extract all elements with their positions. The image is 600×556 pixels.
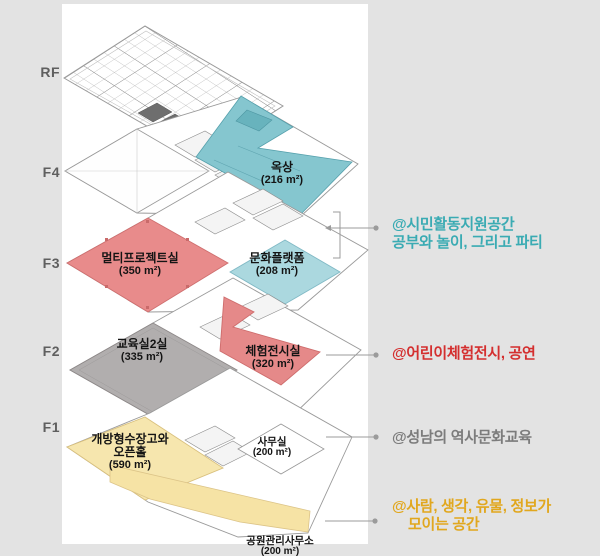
room-name: 멀티프로젝트실 [101,252,178,265]
annotation-citizen-support-space: @시민활동지원공간 공부와 놀이, 그리고 파티 [392,216,542,251]
room-name: 오픈홀 [91,446,168,459]
annotation-line: 공부와 놀이, 그리고 파티 [392,234,542,252]
room-name: 문화플랫폼 [249,252,304,265]
room-area: (200 m²) [253,448,291,459]
floor-label-rf: RF [26,64,60,80]
room-area: (590 m²) [91,459,168,472]
floor-plans-svg [0,0,600,556]
room-name: 체험전시실 [245,345,300,358]
floor-label-f1: F1 [26,419,60,435]
room-label-multiproject: 멀티프로젝트실 (350 m²) [101,252,178,278]
annotation-line: @사람, 생각, 유물, 정보가 [392,498,551,516]
floor-label-f3: F3 [26,255,60,271]
annotation-line: @시민활동지원공간 [392,216,542,234]
room-area: (200 m²) [246,547,314,556]
annotation-line: @성남의 역사문화교육 [392,429,532,447]
room-name: 사무실 [253,437,291,448]
floor-label-f2: F2 [26,343,60,359]
room-label-park-office: 공원관리사무소 (200 m²) [246,536,314,556]
room-label-culture-platform: 문화플랫폼 (208 m²) [249,252,304,278]
exploded-axonometric-diagram: RF F4 F3 F2 F1 옥상 (216 m²) 멀티프로젝트실 (350 … [0,0,600,556]
room-name: 교육실2실 [117,338,168,351]
annotation-gathering-space: @사람, 생각, 유물, 정보가 모이는 공간 [392,498,551,533]
room-area: (320 m²) [245,358,300,371]
annotation-children-exhibition: @어린이체험전시, 공연 [392,345,536,363]
room-area: (335 m²) [117,351,168,364]
room-name: 옥상 [261,161,303,174]
annotation-line: 모이는 공간 [392,516,551,534]
annotation-history-education: @성남의 역사문화교육 [392,429,532,447]
room-area: (350 m²) [101,265,178,278]
room-area: (216 m²) [261,174,303,187]
room-label-open-storage: 개방형수장고와 오픈홀 (590 m²) [91,433,168,472]
room-label-classrooms: 교육실2실 (335 m²) [117,338,168,364]
room-label-rooftop: 옥상 (216 m²) [261,161,303,187]
annotation-line: @어린이체험전시, 공연 [392,345,536,363]
room-label-experience-hall: 체험전시실 (320 m²) [245,345,300,371]
room-label-office: 사무실 (200 m²) [253,437,291,458]
room-area: (208 m²) [249,265,304,278]
room-name: 공원관리사무소 [246,536,314,547]
floor-label-f4: F4 [26,164,60,180]
